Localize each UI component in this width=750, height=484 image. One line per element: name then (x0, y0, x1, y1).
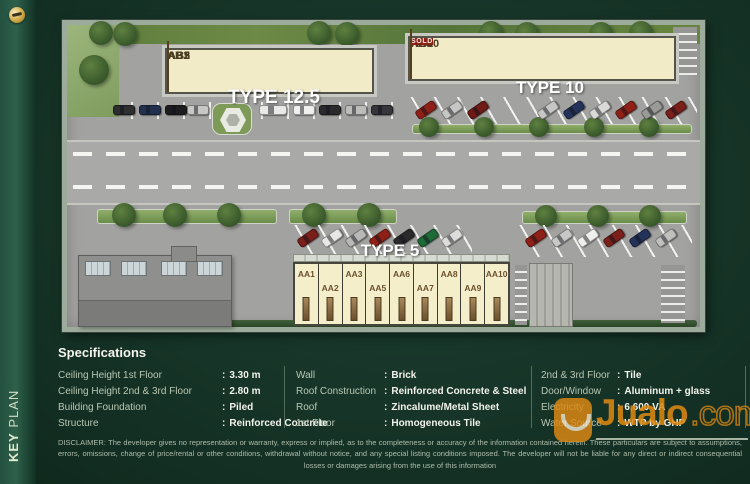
site-plan: AB1 AB2 AB3 AB5 AB6 AB7 AB8 AB9 AB10 SOL… (62, 20, 705, 332)
lane-marking (73, 185, 693, 189)
spec-row: Structure:Reinforced Concrete (58, 415, 328, 431)
tree-icon (587, 205, 609, 227)
car (139, 105, 161, 115)
rooftop-box (171, 246, 197, 262)
plan-label: PLAN (6, 390, 21, 428)
spec-row: Roof Construction:Reinforced Concrete & … (296, 383, 526, 399)
unit-aa6: AA6 (389, 264, 413, 324)
tree-icon (474, 117, 494, 137)
spec-row: 1st Floor:Homogeneous Tile (296, 415, 526, 431)
skylight-windows (85, 261, 111, 276)
partial-building (529, 263, 573, 327)
spec-row: 2nd & 3rd Floor:Tile (541, 367, 710, 383)
car (371, 105, 393, 115)
warehouse-building (78, 255, 232, 327)
parking-stripes (673, 27, 697, 75)
building-row-type-10: AB6 AB7 AB8 AB9 AB10 SOLD (408, 36, 676, 81)
watermark-underline (596, 438, 748, 440)
tree-icon (639, 205, 661, 227)
unit-aa7: AA7 (413, 264, 437, 324)
column-divider (284, 366, 285, 428)
tree-icon (217, 203, 241, 227)
tree-icon (307, 21, 331, 45)
tree-icon (535, 205, 557, 227)
jualo-logo-icon (554, 398, 592, 442)
spec-row: Ceiling Height 1st Floor:3.30 m (58, 367, 328, 383)
tree-icon (529, 117, 549, 137)
brand-emblem-icon (9, 7, 25, 23)
car (113, 105, 135, 115)
car (165, 105, 187, 115)
unit-aa5: AA5 (365, 264, 389, 324)
tree-icon (79, 55, 109, 85)
unit-aa3: AA3 (342, 264, 366, 324)
spec-row: Roof:Zincalume/Metal Sheet (296, 399, 526, 415)
watermark-name: Jualo (596, 392, 688, 434)
building-row-type-5: AA1 AA2 AA3 AA5 AA6 AA7 AA8 AA9 AA10 (293, 262, 510, 326)
key-plan-vertical-label: KEY PLAN (6, 390, 21, 462)
building-facade (79, 300, 231, 326)
tree-icon (112, 203, 136, 227)
unit-aa10: AA10 (484, 264, 508, 324)
type-12-5-label: TYPE 12.5 (194, 87, 354, 109)
unit-aa2: AA2 (318, 264, 342, 324)
column-divider (531, 366, 532, 428)
spec-column-1: Ceiling Height 1st Floor:3.30 m Ceiling … (58, 367, 328, 431)
spec-row: Ceiling Height 2nd & 3rd Floor:2.80 m (58, 383, 328, 399)
unit-aa1: AA1 (295, 264, 318, 324)
tree-icon (89, 21, 113, 45)
spec-column-2: Wall:Brick Roof Construction:Reinforced … (296, 367, 526, 431)
unit-aa8: AA8 (437, 264, 461, 324)
tree-icon (302, 203, 326, 227)
parking-stripes (661, 265, 685, 323)
parking-stripes (515, 265, 527, 325)
sidebar: KEY PLAN (0, 0, 36, 484)
tree-icon (357, 203, 381, 227)
sold-unit-badge: SOLD (410, 38, 433, 45)
unit-aa9: AA9 (460, 264, 484, 324)
skylight-windows (121, 261, 147, 276)
tree-icon (335, 22, 359, 46)
stair-core (410, 29, 412, 79)
skylight-windows (161, 261, 187, 276)
tree-icon (419, 117, 439, 137)
spec-row: Wall:Brick (296, 367, 526, 383)
type-10-label: TYPE 10 (470, 78, 630, 98)
key-label: KEY (6, 432, 21, 462)
stair-core (167, 41, 169, 92)
lane-marking (73, 152, 693, 156)
watermark-tld: .com (690, 394, 750, 434)
watermark: Jualo .com (550, 390, 750, 446)
type-5-label: TYPE 5 (310, 241, 470, 261)
page: { "colors": { "background_green": "#1430… (0, 0, 750, 484)
skylight-windows (197, 261, 223, 276)
specifications-heading: Specifications (58, 345, 146, 360)
main-road (67, 140, 700, 205)
tree-icon (584, 117, 604, 137)
tree-icon (639, 117, 659, 137)
spec-row: Building Foundation:Piled (58, 399, 328, 415)
tree-icon (163, 203, 187, 227)
unit-ab5: AB5 (167, 50, 190, 62)
tree-icon (113, 22, 137, 46)
